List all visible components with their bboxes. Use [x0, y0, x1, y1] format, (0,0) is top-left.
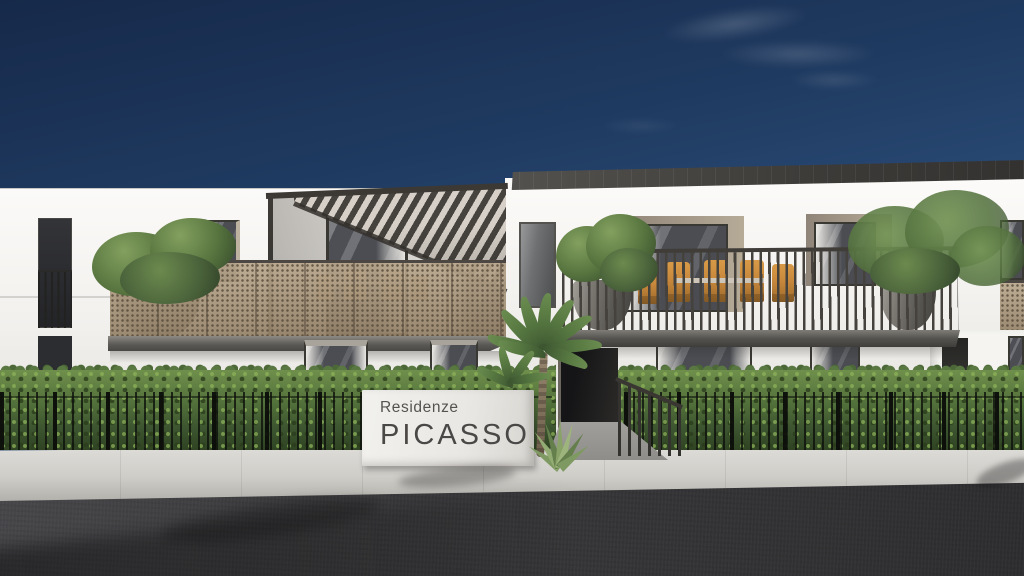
cloud-icon	[788, 70, 880, 90]
cloud-icon	[718, 40, 878, 68]
far-right-juliet-mesh	[1000, 280, 1024, 332]
slab-shadow	[560, 347, 956, 359]
agave-plant	[524, 408, 596, 468]
render-canvas: Residenze PICASSO	[0, 0, 1024, 576]
terrace-slab	[556, 330, 960, 347]
juliet-railing-far-left	[38, 270, 72, 328]
terrace-tree	[950, 226, 1024, 286]
metal-fence	[624, 392, 1024, 450]
cloud-icon	[598, 118, 682, 134]
